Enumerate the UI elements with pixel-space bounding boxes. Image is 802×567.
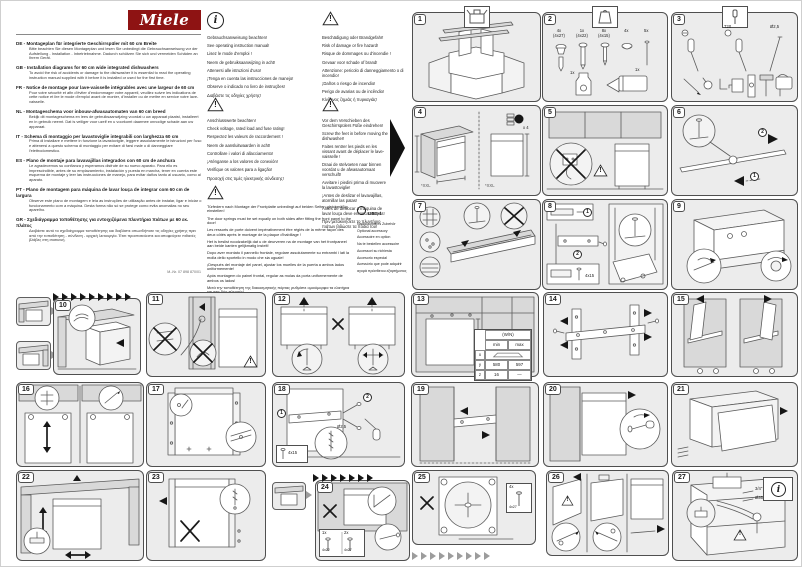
material-number: M.-Nr. 07 898 870/01 (121, 270, 201, 274)
step-1-marker: 1 (277, 409, 286, 418)
notice-line: Beschädigung oder Brandgefahr! (322, 36, 406, 41)
accessory-line: Accessori su richiesta (357, 249, 407, 253)
step-panel-27-water-connection: 27 3/4" Ø35 mm ! i (672, 470, 798, 561)
step-panel-6-condensate-strip: 6 1 2 (671, 105, 798, 196)
panel-23-art (147, 471, 265, 560)
panel-number: 10 (55, 300, 71, 311)
torx-size-label: T20 (724, 25, 731, 30)
notice-line: Attenersi alle istruzioni d'uso! (207, 69, 309, 74)
screw-size-label: 4x15 (585, 274, 594, 279)
miele-logo: Miele (128, 10, 201, 30)
panel-number: 26 (548, 472, 564, 483)
panel-19-art (412, 383, 538, 466)
panel-number: 25 (414, 472, 430, 483)
part-count-label: 1x (635, 68, 639, 73)
notice-line: Les ressorts de porte doivent impérative… (207, 228, 353, 237)
step-panel-13-mark-front: 13 (W/N) min max x y 580 597 z 16 — (411, 292, 539, 377)
niche-variant-thumb-2 (16, 341, 51, 370)
sequence-arrow-strip-gray (412, 547, 493, 565)
panel-number: 1 (414, 14, 426, 25)
dimension-table: (W/N) min max x y 580 597 z 16 — (474, 329, 532, 381)
panel-number: 18 (274, 384, 290, 395)
step-panel-3-tools: 3 T20 Ø2,5 (671, 12, 798, 102)
table-z-min: 16 (485, 370, 508, 380)
step-panel-17-template: 17 (146, 382, 266, 467)
table-row-y: y (475, 360, 485, 370)
notice-line: Controllare i valori di allacciamento! (207, 152, 309, 157)
installation-sheet: Miele DE - Montageplan für integrierte G… (0, 0, 802, 567)
panel-number: 3 (673, 14, 685, 25)
step-panel-15-hang-panel: 15 (671, 292, 798, 377)
panel-number: 8 (544, 201, 556, 212)
warning-icon: ! (243, 355, 258, 368)
notice-line: Vor dem Verschieben des Geschirrspülers … (322, 119, 388, 129)
notice-line: Avvitare i piedini prima di muovere la l… (322, 181, 388, 191)
part-count-label: 4x (4x27) (553, 29, 565, 38)
notice-line: Anschlusswerte beachten! (207, 119, 309, 124)
table-y-max: 597 (508, 360, 531, 370)
inlet-size-label: 3/4" (755, 487, 762, 492)
notice-springs: Türfedern nach Montage der Frontplatte u… (207, 205, 353, 298)
continue-arrow-icon (390, 119, 405, 177)
panel-12-art (273, 293, 404, 376)
notice-line: Het is beslist noodzakelijk dat u de deu… (207, 240, 353, 249)
step-panel-2-parts: 2 4x (4x27) 1x (4x22) 8x (4x15) 4x 5x 1x… (542, 12, 668, 102)
notice-line: Attenzione: pericolo di danneggiamento o… (322, 69, 406, 79)
panel-22-art (17, 471, 143, 560)
lang-body: Prima di installare e mettere in funzion… (29, 139, 202, 154)
panel-number: 19 (413, 384, 429, 395)
niche-variant-thumb-1 (16, 297, 51, 326)
lang-body: Observe este plano de montagem e leia as… (29, 199, 202, 214)
step-panel-10-push-in: 10 (53, 298, 141, 375)
info-icon: i (771, 482, 786, 497)
thumb-arrow-icon (306, 491, 312, 499)
lang-section-fr: FR - Notice de montage pour lave-vaissel… (16, 85, 202, 105)
screw-inset: 4x15 (276, 445, 308, 463)
accessory-line: Na te bestellen accessoire (357, 242, 407, 246)
step-panel-8-bracket: 8 1 2 4x15 (542, 199, 668, 290)
notice-line: ¡Tenga en cuenta las instrucciones de ma… (207, 77, 309, 82)
panel-15-art (672, 293, 797, 376)
niche-variant-thumb-3 (272, 482, 306, 510)
notice-manual: Gebrauchsanweisung beachten! See operati… (207, 36, 309, 102)
notice-line: ¡Después del montaje del panel, ajustar … (207, 263, 353, 272)
screw-inset: 4x 4x27 (506, 483, 532, 513)
panel-number: 14 (545, 294, 561, 305)
part-count-label: 4x (624, 29, 628, 34)
step-panel-1: 1 (412, 12, 541, 102)
part-count-label: 1x (4x22) (576, 29, 588, 38)
step-2-marker: 2 (758, 128, 767, 137)
accessory-badge: UBS-1 (368, 211, 382, 216)
notice-line: Risque de dommages ou d'incendie ! (322, 52, 406, 57)
pads-count-label: x 4 (523, 126, 529, 131)
notice-line: ¡Aténganse a los valores de conexión! (207, 160, 309, 165)
warning-icon: ! (322, 97, 339, 112)
screw-count-label: 2x (344, 531, 348, 536)
language-intro-column: DE - Montageplan für integrierte Geschir… (16, 41, 202, 269)
accessory-line: αγορά πρόσθετου εξαρτήματος (357, 269, 407, 273)
lang-body: Le agradecemos su confianza y esperamos … (29, 164, 202, 184)
panel-number: 11 (148, 294, 163, 305)
notice-line: Προσοχή στις τιμές ηλεκτρικής σύνδεσης! (207, 177, 309, 182)
warning-icon: ! (207, 97, 224, 112)
notice-line: Verifique os valores para a ligação! (207, 168, 309, 173)
lang-section-de: DE - Montageplan für integrierte Geschir… (16, 41, 202, 61)
notice-line: Check voltage, rated load and fuse ratin… (207, 127, 309, 132)
notice-line: ¡Daños o riesgo de incendio! (322, 82, 406, 87)
panel-8-art (543, 200, 667, 289)
step-panel-11-hose-routing: 11 ! (146, 292, 266, 377)
panel-26-art (547, 471, 668, 555)
notice-line: See operating instruction manual! (207, 44, 309, 49)
warning-icon: ! (561, 495, 574, 506)
notice-line: Após montagem do painel frontal, regular… (207, 274, 353, 283)
step-1-marker: 1 (750, 172, 759, 181)
panel-21-art (672, 383, 797, 466)
part-count-label: 5x (644, 29, 648, 34)
step-panel-4-niche-dimensions: 4 x 4 *XXL *XXL (412, 105, 541, 196)
notice-line: Türfedern nach Montage der Frontplatte u… (207, 205, 353, 214)
panel-number: 23 (148, 472, 164, 483)
panel-number: 22 (18, 472, 34, 483)
screw-size-label: 4x27 (509, 506, 517, 510)
panel-16-art (17, 383, 143, 466)
warning-icon: ! (207, 185, 224, 200)
step-panel-7-steam-guard: 7 (412, 199, 541, 290)
screw-size-label: 4x27 (344, 549, 352, 553)
notice-connection: Anschlusswerte beachten! Check voltage, … (207, 119, 309, 185)
lang-body: Διαβάστε αυτό το σχεδιάγραμμα τοποθέτηση… (29, 229, 202, 244)
step-panel-19-align-rail: 19 (411, 382, 539, 467)
panel-number: 27 (674, 472, 690, 483)
panel-number: 15 (673, 294, 689, 305)
panel-4-art (413, 106, 540, 195)
warning-icon: ! (322, 11, 339, 26)
step-panel-25-screw-variant-b: 25 4x 4x27 (412, 470, 536, 545)
panel-number: 6 (673, 107, 685, 118)
accessory-line: Acessório que pode adquirir (357, 262, 407, 266)
panel-number: 20 (545, 384, 561, 395)
notice-line: Draai de stelvoeten naar binnen voordat … (322, 163, 388, 177)
accessory-line: Accesorio especial (357, 256, 407, 260)
lang-title: GR - Σχεδιάγραμμα τοποθέτησης για εντοιχ… (16, 217, 202, 228)
step-panel-18-drill-fix: 18 1 2 Ø2,5 4x15 (272, 382, 405, 467)
lang-title: PT - Plano de montagem para máquina de l… (16, 187, 202, 198)
panel-number: 2 (544, 14, 556, 25)
table-title: (W/N) (485, 330, 531, 340)
step-panel-12-levelling-feet: 12 (272, 292, 405, 377)
panel-number: 21 (673, 384, 689, 395)
screw-size-label: 4x22 (322, 549, 330, 553)
panel-number: 24 (317, 482, 333, 493)
part-count-label: 8x (4x15) (598, 29, 610, 38)
panel-number: 4 (414, 107, 426, 118)
lang-body: Bitte beachten Sie diesen Montageplan un… (29, 47, 202, 62)
table-col-min: min (485, 340, 508, 350)
step-panel-26-door-springs: 26 ! (546, 470, 669, 556)
notice-line: Lisez le mode d'emploi ! (207, 52, 309, 57)
lang-body: To avoid the risk of accidents or damage… (29, 71, 202, 81)
accessory-logo-icon (357, 206, 366, 215)
panel-number: 5 (544, 107, 556, 118)
table-col-max: max (508, 340, 531, 350)
header-rule (16, 34, 201, 35)
panel-5-art (543, 106, 667, 195)
accessory-line: Nachkaufbares Zubehör (357, 222, 407, 226)
table-row-x: x (475, 350, 485, 360)
notice-line: Risk of damage or fire hazard! (322, 44, 406, 49)
notice-line: Gebrauchsanweisung beachten! (207, 36, 309, 41)
drill-size-label: Ø2,5 (770, 25, 779, 30)
notice-line: Perigo de avarias ou de incêndio! (322, 90, 406, 95)
step-2-marker: 2 (363, 393, 372, 402)
table-y-min: 580 (485, 360, 508, 370)
notice-damage: Beschädigung oder Brandgefahr! Risk of d… (322, 36, 406, 107)
optional-accessory-note: UBS-1 Nachkaufbares Zubehör Optional acc… (357, 202, 407, 276)
lang-body: Pour votre sécurité et afin d'éviter d'e… (29, 91, 202, 106)
panel-9-art (672, 200, 797, 289)
lang-section-gb: GB - Installation diagrams for 60 cm wid… (16, 65, 202, 80)
miele-logo-text: Miele (140, 11, 190, 29)
screw-inset: 1x 4x22 2x 4x27 (319, 529, 365, 557)
step-1-marker: 1 (583, 208, 592, 217)
screw-size-label: 4x15 (288, 451, 297, 456)
step-panel-14-fit-rail: 14 (543, 292, 668, 377)
screw-count-label: 4x (509, 485, 513, 490)
table-row-z: z (475, 370, 485, 380)
panel-20-art (544, 383, 667, 466)
panel-number: 16 (18, 384, 34, 395)
notice-line: Dopo aver montato il pannello frontale, … (207, 251, 353, 260)
step-panel-21-panel-on-door: 21 (671, 382, 798, 467)
unpack-pictogram (464, 6, 490, 28)
notice-line: Observe o indicado no livro de instruçõe… (207, 85, 309, 90)
step-panel-5-no-socket-behind: 5 ! (542, 105, 668, 196)
xxl-label: *XXL (421, 184, 431, 189)
step-panel-9-top-adjust: 9 (671, 199, 798, 290)
notice-line: Gevaar voor schade of brand! (322, 61, 406, 66)
panel-6-art (672, 106, 797, 195)
info-icon: i (207, 12, 224, 29)
screw-bag-pictogram (592, 6, 618, 28)
panel-number: 17 (148, 384, 164, 395)
part-count-label: 1x (570, 71, 574, 76)
warning-icon: ! (593, 164, 608, 177)
lang-section-gr: GR - Σχεδιάγραμμα τοποθέτησης για εντοιχ… (16, 217, 202, 243)
step-panel-20-screw-panel: 20 (543, 382, 668, 467)
panel-7-art (413, 200, 540, 289)
panel-number: 13 (413, 294, 429, 305)
notice-line: The door springs must be set equally on … (207, 217, 353, 226)
warning-icon: ! (733, 529, 747, 541)
step-panel-24-screw-variant-a: 24 1x 4x22 2x 4x27 (315, 480, 410, 561)
panel-14-art (544, 293, 667, 376)
accessory-line: Optional accessory (357, 229, 407, 233)
lang-section-es: ES - Plano de montaje para lavavajillas … (16, 158, 202, 183)
panel-number: 7 (414, 201, 426, 212)
panel-number: 12 (274, 294, 290, 305)
notice-line: Screw the feet in before moving the dish… (322, 132, 388, 142)
notice-line: Neem de aansluitwaarden in acht! (207, 144, 309, 149)
xxl-label: *XXL (485, 184, 495, 189)
accessory-line: Accessoire en option (357, 235, 407, 239)
see-manual-inset: i (763, 477, 793, 501)
notice-line: Faites rentrer les pieds en les vissant … (322, 145, 388, 159)
screw-count-label: 1x (322, 531, 326, 536)
notice-line: Neem de gebruiksaanwijzing in acht! (207, 61, 309, 66)
lang-section-nl: NL - Montageschema voor inbouw-afwasauto… (16, 109, 202, 129)
drill-size-label: Ø2,5 (337, 425, 346, 430)
lang-section-it: IT - Schema di montaggio per lavastovigl… (16, 134, 202, 154)
panel-number: 9 (673, 201, 685, 212)
table-z-max: — (508, 370, 531, 380)
lang-section-pt: PT - Plano de montagem para máquina de l… (16, 187, 202, 213)
step-panel-23-do-not-drill: 23 (146, 470, 266, 561)
lang-body: Bekijk dit montageschema en lees de gebr… (29, 115, 202, 130)
table-x-cell (485, 350, 531, 360)
step-panel-22-final-position: 22 (16, 470, 144, 561)
step-panel-16-height-adjust: 16 (16, 382, 144, 467)
panel-17-art (147, 383, 265, 466)
step-2-marker: 2 (573, 250, 582, 259)
notice-line: Respectez les valeurs de raccordement ! (207, 135, 309, 140)
